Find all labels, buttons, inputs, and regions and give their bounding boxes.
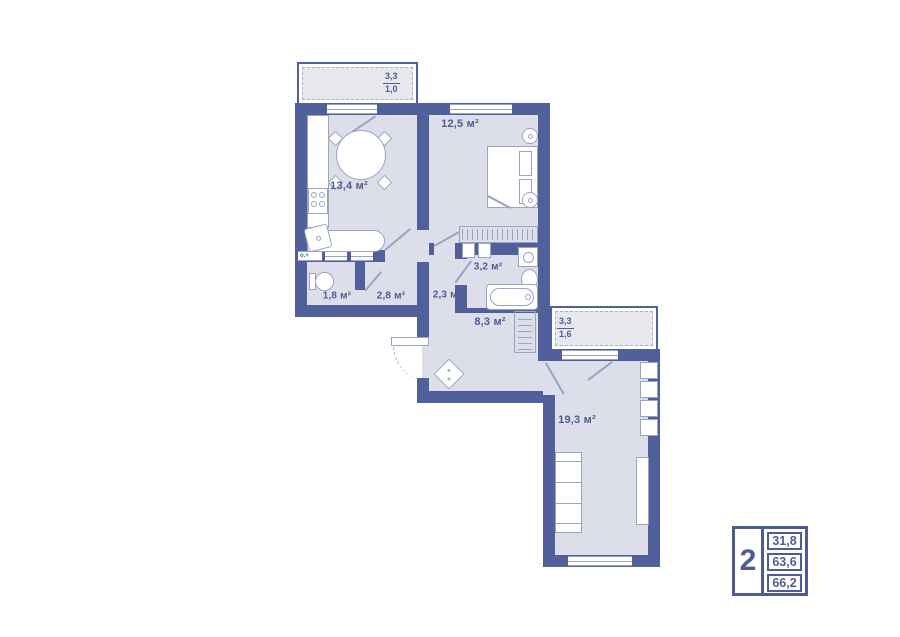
window-kitchen [327,104,377,114]
wall-wc-hallway-stub [355,262,365,290]
sofa-cushion-line [556,482,581,483]
wall-kitchen-bedroom-divider [417,103,429,230]
stove-icon [308,188,328,214]
bed-blanket-fold [488,195,512,209]
balcony-right-label: 3,3 1,6 [557,316,574,340]
sofa-cushion-line [556,503,581,504]
marker-dot [447,368,451,372]
nightstand-lamp-icon [522,128,538,144]
stove-burner [319,192,325,198]
stove-burner [311,192,317,198]
legend-values-column: 31,8 63,6 66,2 [764,529,805,593]
legend-value-apartment-area: 63,6 [767,553,802,571]
washing-machine-icon [518,247,538,267]
lamp-dot [528,198,533,203]
room-label-corridor: 2,3 м² [433,290,462,301]
legend-value-living-area: 31,8 [767,532,802,550]
nightstand-lamp-icon [522,192,538,208]
window-glass-line [562,355,618,356]
legend-value-total-area: 66,2 [767,574,802,592]
sofa-armrest [555,523,582,533]
window-wc-vent: о.+ [298,251,322,261]
shelf-unit-icon [640,419,658,436]
lamp-dot [528,134,533,139]
room-label-wc: 1,8 м² [323,291,352,302]
shelf-unit-icon [640,381,658,398]
room-label-kitchen: 13,4 м² [330,180,368,192]
window-living-balcony-door [562,350,618,360]
shelf-unit-icon [640,362,658,379]
balcony-right-area: 3,3 [557,316,574,329]
window-kitchen-partition-2 [351,251,373,261]
bathtub-drain [525,294,531,300]
room-label-bedroom: 12,5 м² [441,118,479,130]
window-glass-line [568,561,632,562]
balcony-top-area-reduced: 1,0 [383,84,400,96]
floor-plan: 3,3 1,0 3,3 1,6 о.+ [0,0,900,637]
room-label-hallway: 2,8 м² [377,291,406,302]
entrance-door-swing-arc [393,345,429,381]
wall-bottom-upper-block [295,305,429,317]
wall-right-exterior [538,103,550,361]
sofa-icon [555,452,582,532]
window-glass-line [325,256,347,257]
room-label-hall: 8,3 м² [474,316,505,328]
sink-drain [316,235,322,241]
bed-pillow [519,151,532,176]
marker-dot [447,377,451,381]
window-glass-line [327,109,377,110]
legend-room-count: 2 [735,529,764,593]
wall-hall-bottom [417,391,543,403]
window-kitchen-partition-1 [325,251,347,261]
shelf-unit-icon [640,400,658,417]
hall-closet-icon [514,311,536,353]
wall-living-left [543,395,555,567]
bathtub-icon [486,284,538,310]
wc-vent-label: о.+ [300,253,309,259]
balcony-top-area: 3,3 [383,71,400,84]
legend-box: 2 31,8 63,6 66,2 [732,526,808,596]
stove-burner [311,201,317,207]
wardrobe-icon [459,226,538,243]
room-label-living: 19,3 м² [558,414,596,426]
tv-stand-icon [636,457,649,525]
window-bedroom [450,104,512,114]
dining-table-icon [336,130,386,180]
toilet-icon [315,272,334,291]
balcony-right-area-reduced: 1,6 [557,329,574,341]
window-bathroom-block-2 [478,243,491,258]
stove-burner [319,201,325,207]
wall-hallway-corridor-divider [417,262,429,317]
wall-left-exterior [295,103,307,317]
washer-drum [523,252,534,263]
room-label-bathroom: 3,2 м² [474,262,503,273]
sofa-armrest [555,452,582,462]
balcony-top [297,62,418,105]
window-living-bottom [568,556,632,566]
balcony-top-label: 3,3 1,0 [383,71,400,95]
window-glass-line [450,109,512,110]
window-bathroom-block-1 [462,243,475,258]
window-glass-line [351,256,373,257]
wall-hall-left-upper [417,317,429,338]
